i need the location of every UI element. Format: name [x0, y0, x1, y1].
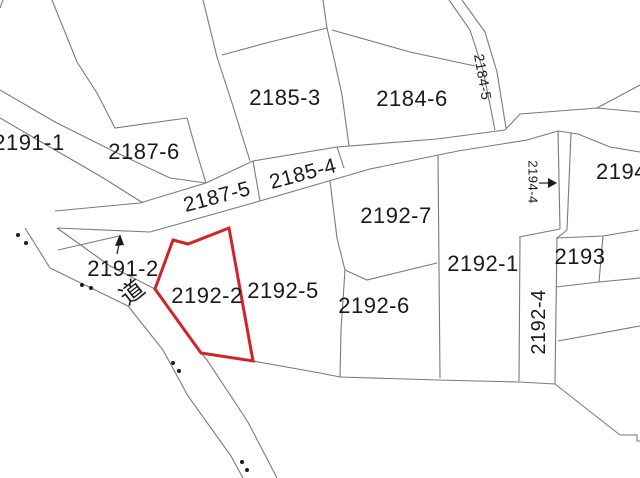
parcel-label-2192-1: 2192-1	[447, 253, 519, 275]
parcel-label-2192-5: 2192-5	[247, 280, 319, 302]
parcel-label-2187-6: 2187-6	[108, 141, 180, 163]
arrow-head-2191-2	[115, 234, 124, 246]
arrow-head-2194-4	[548, 178, 557, 188]
parcel-label-2194-: 2194-	[596, 161, 640, 183]
parcel-label-2193: 2193	[555, 246, 606, 268]
parcel-boundaries-svg	[0, 0, 640, 478]
parcel-label-2192-7: 2192-7	[360, 205, 432, 227]
parcel-label-2192-6: 2192-6	[338, 295, 410, 317]
parcel-label-2191-1: 2191-1	[0, 132, 65, 154]
parcel-label-2185-3: 2185-3	[249, 87, 321, 109]
parcel-label-2184-6: 2184-6	[376, 88, 448, 110]
parcel-label-2192-4: 2192-4	[529, 289, 549, 354]
cadastral-map: 2191-12187-62185-32184-62187-52185-42184…	[0, 0, 640, 478]
parcel-label-2191-2: 2191-2	[87, 258, 159, 280]
parcel-label-2194-4: 2194-4	[527, 160, 540, 203]
parcel-label-2192-2: 2192-2	[171, 285, 243, 307]
parcel-boundary-lines	[0, 0, 640, 478]
